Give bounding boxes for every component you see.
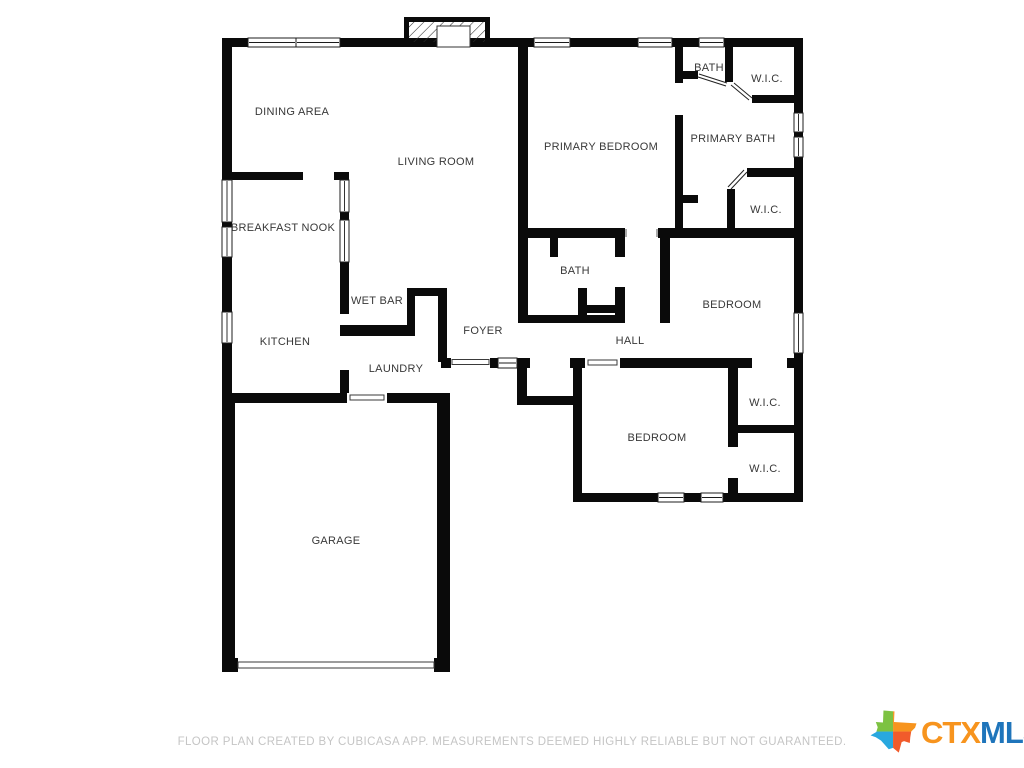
room-label-wic-primary-south: W.I.C. [750, 204, 782, 216]
room-label-primary-bedroom: PRIMARY BEDROOM [544, 141, 658, 153]
room-label-bedroom-south: BEDROOM [628, 432, 687, 444]
doors [238, 74, 752, 668]
garage-door [238, 662, 434, 668]
front-door [452, 360, 489, 365]
room-label-wet-bar: WET BAR [351, 295, 403, 307]
room-label-hall: HALL [616, 335, 645, 347]
ctxmls-ctx-text: CTX [921, 715, 980, 750]
bedroom-south-door [588, 360, 617, 365]
room-label-foyer: FOYER [463, 325, 502, 337]
ctxmls-mls-text: MLS [980, 715, 1024, 750]
fireplace [407, 20, 488, 48]
room-label-living-room: LIVING ROOM [398, 156, 475, 168]
room-label-breakfast-nook: BREAKFAST NOOK [231, 222, 335, 234]
room-label-primary-bath: PRIMARY BATH [691, 133, 776, 145]
ctxmls-texas-icon [870, 710, 918, 755]
room-label-bedroom-middle: BEDROOM [703, 299, 762, 311]
room-label-wic-bedroom-north: W.I.C. [749, 397, 781, 409]
room-label-wic-bedroom-south: W.I.C. [749, 463, 781, 475]
floor-plan-page: DINING AREA LIVING ROOM PRIMARY BEDROOM … [0, 0, 1024, 768]
laundry-garage-door [350, 395, 384, 400]
room-label-bath-hall: BATH [560, 265, 590, 277]
ctxmls-logo: CTXMLS [870, 710, 1024, 755]
room-label-garage: GARAGE [312, 535, 361, 547]
ctxmls-wordmark: CTXMLS [921, 717, 1024, 748]
disclaimer-text: FLOOR PLAN CREATED BY CUBICASA APP. MEAS… [178, 736, 847, 748]
room-label-bath-primary: BATH [694, 62, 724, 74]
floor-plan-drawing [0, 0, 1024, 768]
room-label-laundry: LAUNDRY [369, 363, 423, 375]
room-label-wic-primary-north: W.I.C. [751, 73, 783, 85]
room-label-dining-area: DINING AREA [255, 106, 329, 118]
room-label-kitchen: KITCHEN [260, 336, 310, 348]
